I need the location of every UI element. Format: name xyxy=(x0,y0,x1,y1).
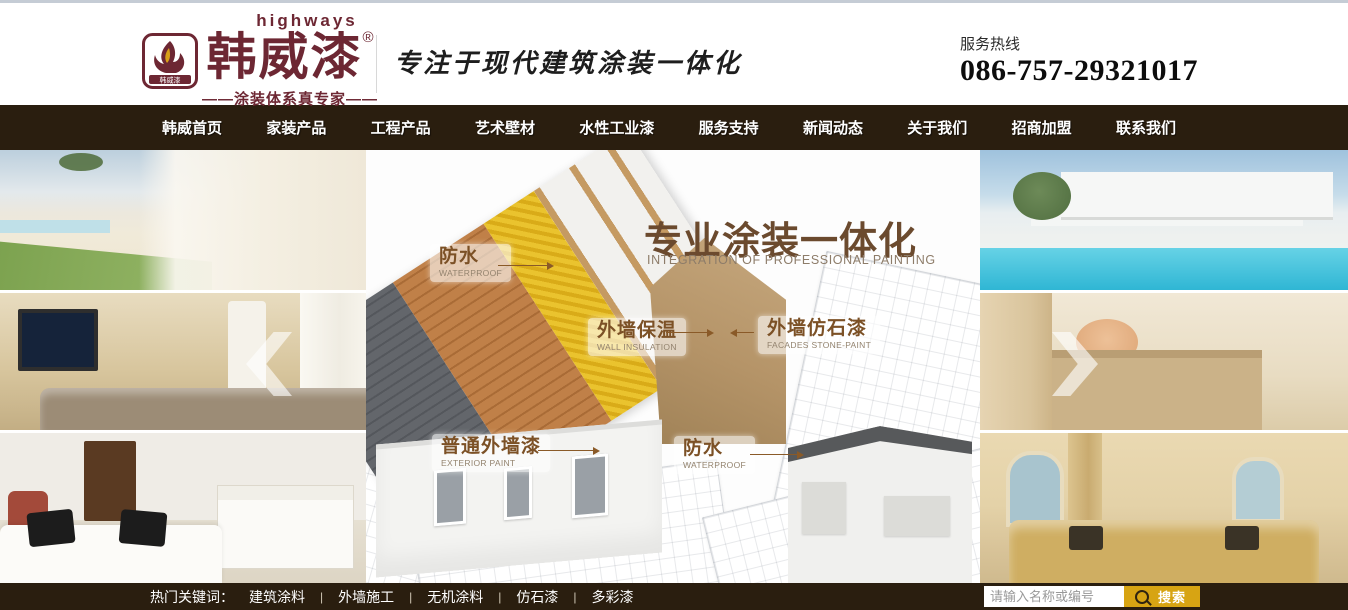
callout-zh: 防水 xyxy=(683,439,746,459)
site-logo[interactable]: 韩威漆 highways 韩威漆® ——涂装体系真专家—— xyxy=(142,11,378,109)
callout-en: WATERPROOF xyxy=(683,460,746,470)
banner-right-photo-column xyxy=(980,150,1348,583)
decor-tv xyxy=(18,309,98,371)
nav-item-service-support[interactable]: 服务支持 xyxy=(699,117,759,138)
interior-cabinet xyxy=(884,496,950,536)
logo-highways-text: highways xyxy=(202,11,378,31)
callout-zh: 普通外墙漆 xyxy=(441,437,541,457)
callout-arrow-right xyxy=(750,454,802,455)
callout-arrow-right xyxy=(666,332,712,333)
brand-name: 韩威漆 xyxy=(206,29,362,85)
photo-pool-villa xyxy=(980,150,1348,290)
callout-wall-insulation: 外墙保温 WALL INSULATION xyxy=(588,318,686,356)
keyword-separator: | xyxy=(320,590,323,604)
search-box: 搜索 xyxy=(984,586,1200,607)
nav-item-home[interactable]: 韩威首页 xyxy=(162,117,222,138)
registered-trademark-mark: ® xyxy=(362,29,373,46)
window xyxy=(572,453,608,518)
callout-en: WALL INSULATION xyxy=(597,342,677,352)
callout-arrow-right xyxy=(538,450,598,451)
photo-classic-living-room xyxy=(0,293,366,430)
brand-logo-icon: 韩威漆 xyxy=(142,33,198,89)
search-button[interactable]: 搜索 xyxy=(1124,586,1200,607)
decor-white-sofa xyxy=(0,525,222,583)
callout-exterior-paint: 普通外墙漆 EXTERIOR PAINT xyxy=(432,434,550,472)
keywords-label: 热门关键词： xyxy=(150,587,234,607)
decor-marble-column xyxy=(980,293,1052,430)
callout-en: FACADES STONE-PAINT xyxy=(767,340,871,350)
photo-piano-room xyxy=(0,433,366,583)
decor-palm-tree xyxy=(59,153,103,171)
house-interior-rooms xyxy=(788,426,972,583)
photo-luxury-interior xyxy=(980,293,1348,430)
keywords-search-bar: 热门关键词： 建筑涂料 | 外墙施工 | 无机涂料 | 仿石漆 | 多彩漆 搜索 xyxy=(0,583,1348,610)
logo-badge-text: 韩威漆 xyxy=(160,76,181,85)
keyword-link-inorganic-coatings[interactable]: 无机涂料 xyxy=(427,587,483,607)
logo-text-block: highways 韩威漆® ——涂装体系真专家—— xyxy=(202,11,378,109)
window xyxy=(504,466,532,520)
site-header: 韩威漆 highways 韩威漆® ——涂装体系真专家—— 专注于现代建筑涂装一… xyxy=(0,3,1348,105)
nav-item-news[interactable]: 新闻动态 xyxy=(803,117,863,138)
callout-facades-stone-paint: 外墙仿石漆 FACADES STONE-PAINT xyxy=(758,316,880,354)
hot-keywords: 热门关键词： 建筑涂料 | 外墙施工 | 无机涂料 | 仿石漆 | 多彩漆 xyxy=(150,583,634,610)
decor-sofa xyxy=(40,388,366,430)
callout-arrow-right xyxy=(498,265,552,266)
keyword-separator: | xyxy=(409,590,412,604)
callout-zh: 外墙保温 xyxy=(597,321,677,341)
photo-gold-sofa-room xyxy=(980,433,1348,583)
callout-en: EXTERIOR PAINT xyxy=(441,458,541,468)
nav-item-contact-us[interactable]: 联系我们 xyxy=(1116,117,1176,138)
banner-slide-house-cutaway: 专业涂装一体化 INTEGRATION OF PROFESSIONAL PAIN… xyxy=(366,150,980,583)
callout-en: WATERPROOF xyxy=(439,268,502,278)
decor-pool-strip xyxy=(0,220,110,233)
decor-arch-window xyxy=(1006,451,1064,527)
decor-pergola xyxy=(139,150,366,290)
interior-cabinet xyxy=(802,482,846,534)
callout-zh: 外墙仿石漆 xyxy=(767,319,871,339)
hotline-number: 086-757-29321017 xyxy=(960,54,1198,88)
search-button-label: 搜索 xyxy=(1158,587,1186,606)
nav-item-waterborne-industrial-paint[interactable]: 水性工业漆 xyxy=(579,117,654,138)
window xyxy=(434,468,466,527)
service-hotline: 服务热线 086-757-29321017 xyxy=(960,33,1198,88)
banner-left-photo-column xyxy=(0,150,366,583)
hero-banner: 专业涂装一体化 INTEGRATION OF PROFESSIONAL PAIN… xyxy=(0,150,1348,583)
magnifier-icon xyxy=(1135,590,1149,604)
keyword-link-multicolor-paint[interactable]: 多彩漆 xyxy=(592,587,634,607)
header-divider xyxy=(376,35,377,93)
photo-patio-pergola xyxy=(0,150,366,290)
search-input[interactable] xyxy=(984,586,1124,607)
nav-item-engineering-products[interactable]: 工程产品 xyxy=(371,117,431,138)
nav-item-art-wall-materials[interactable]: 艺术壁材 xyxy=(475,117,535,138)
main-nav: 韩威首页 家装产品 工程产品 艺术壁材 水性工业漆 服务支持 新闻动态 关于我们… xyxy=(0,105,1348,150)
keyword-link-exterior-wall-construction[interactable]: 外墙施工 xyxy=(338,587,394,607)
callout-waterproof-roof: 防水 WATERPROOF xyxy=(430,244,511,282)
brand-slogan: 专注于现代建筑涂装一体化 xyxy=(394,43,742,80)
decor-gold-sofa xyxy=(1009,520,1318,583)
decor-white-piano xyxy=(217,485,354,569)
page: 韩威漆 highways 韩威漆® ——涂装体系真专家—— 专注于现代建筑涂装一… xyxy=(0,0,1348,610)
callout-arrow-left xyxy=(732,332,754,333)
hotline-label: 服务热线 xyxy=(960,33,1198,54)
keyword-separator: | xyxy=(498,590,501,604)
decor-arch-window xyxy=(1232,457,1284,523)
keyword-link-stone-paint[interactable]: 仿石漆 xyxy=(516,587,558,607)
banner-subtitle: INTEGRATION OF PROFESSIONAL PAINTING xyxy=(647,253,936,267)
callout-waterproof-floor: 防水 WATERPROOF xyxy=(674,436,755,474)
brand-tagline: ——涂装体系真专家—— xyxy=(202,88,378,109)
keyword-separator: | xyxy=(573,590,576,604)
decor-swimming-pool xyxy=(980,243,1348,290)
nav-item-franchise[interactable]: 招商加盟 xyxy=(1012,117,1072,138)
nav-item-home-decor-products[interactable]: 家装产品 xyxy=(266,117,326,138)
nav-item-about-us[interactable]: 关于我们 xyxy=(907,117,967,138)
decor-modern-building xyxy=(1061,172,1333,220)
callout-zh: 防水 xyxy=(439,247,502,267)
keyword-link-architectural-coatings[interactable]: 建筑涂料 xyxy=(249,587,305,607)
